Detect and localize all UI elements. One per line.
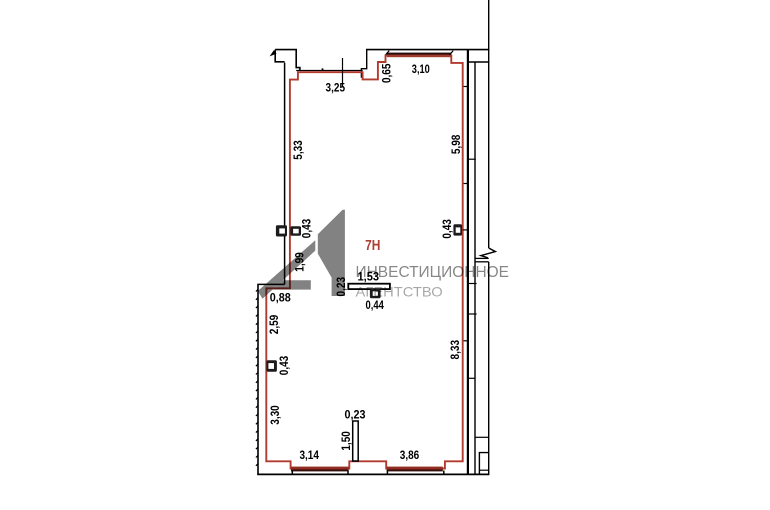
svg-text:0,43: 0,43 bbox=[299, 219, 313, 239]
svg-text:3,30: 3,30 bbox=[268, 405, 282, 425]
svg-text:5,33: 5,33 bbox=[291, 140, 305, 160]
svg-text:ИНВЕСТИЦИОННОЕ: ИНВЕСТИЦИОННОЕ bbox=[356, 264, 510, 281]
svg-text:0,43: 0,43 bbox=[277, 356, 291, 376]
svg-text:3,10: 3,10 bbox=[412, 62, 430, 76]
svg-text:3,86: 3,86 bbox=[400, 448, 420, 462]
svg-text:АГЕНТСТВО: АГЕНТСТВО bbox=[356, 284, 443, 300]
svg-text:0,65: 0,65 bbox=[379, 63, 393, 83]
svg-text:0,43: 0,43 bbox=[440, 219, 454, 239]
svg-text:0,23: 0,23 bbox=[345, 407, 366, 421]
svg-text:3,25: 3,25 bbox=[326, 81, 346, 95]
svg-text:3,14: 3,14 bbox=[299, 448, 319, 462]
svg-text:8,33: 8,33 bbox=[448, 340, 462, 360]
svg-text:1,50: 1,50 bbox=[339, 431, 353, 451]
svg-text:7Н: 7Н bbox=[365, 237, 380, 254]
svg-text:0,88: 0,88 bbox=[270, 290, 291, 304]
svg-text:2,59: 2,59 bbox=[267, 315, 281, 335]
svg-text:0,44: 0,44 bbox=[366, 298, 384, 312]
svg-text:5,98: 5,98 bbox=[449, 134, 463, 154]
